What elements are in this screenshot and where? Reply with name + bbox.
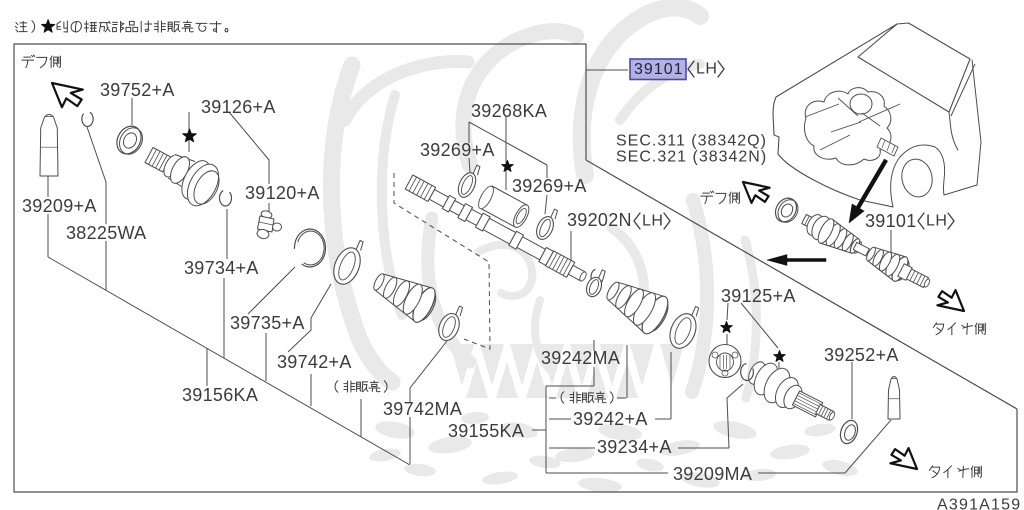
svg-text:38225WA: 38225WA xyxy=(66,223,146,243)
svg-text:LH: LH xyxy=(696,61,717,78)
svg-text:39242+A: 39242+A xyxy=(573,409,648,429)
svg-text:39242MA: 39242MA xyxy=(541,348,620,368)
svg-text:39156KA: 39156KA xyxy=(182,385,258,405)
svg-text:39155KA: 39155KA xyxy=(448,421,524,441)
svg-text:39735+A: 39735+A xyxy=(230,313,305,333)
svg-text:39209MA: 39209MA xyxy=(673,464,752,484)
svg-text:39269+A: 39269+A xyxy=(420,140,495,160)
svg-text:LH: LH xyxy=(642,213,663,230)
svg-text:39202N: 39202N xyxy=(567,210,632,230)
svg-text:39269+A: 39269+A xyxy=(512,176,587,196)
svg-text:39252+A: 39252+A xyxy=(824,345,899,365)
svg-text:39742+A: 39742+A xyxy=(277,352,352,372)
svg-text:39742MA: 39742MA xyxy=(383,399,462,419)
svg-text:39120+A: 39120+A xyxy=(245,183,320,203)
svg-text:LH: LH xyxy=(926,213,947,230)
svg-text:A391A159: A391A159 xyxy=(937,497,1021,510)
svg-text:39734+A: 39734+A xyxy=(184,258,259,278)
svg-text:39752+A: 39752+A xyxy=(100,80,175,100)
svg-text:39101: 39101 xyxy=(634,61,684,78)
svg-text:39101: 39101 xyxy=(865,211,917,231)
svg-text:SEC.311 (38342Q): SEC.311 (38342Q) xyxy=(616,133,767,150)
svg-text:39268KA: 39268KA xyxy=(471,101,547,121)
svg-text:SEC.321 (38342N): SEC.321 (38342N) xyxy=(616,149,767,166)
svg-text:39125+A: 39125+A xyxy=(721,286,796,306)
svg-text:39234+A: 39234+A xyxy=(597,437,672,457)
svg-text:39126+A: 39126+A xyxy=(201,97,276,117)
svg-text:39209+A: 39209+A xyxy=(22,196,97,216)
